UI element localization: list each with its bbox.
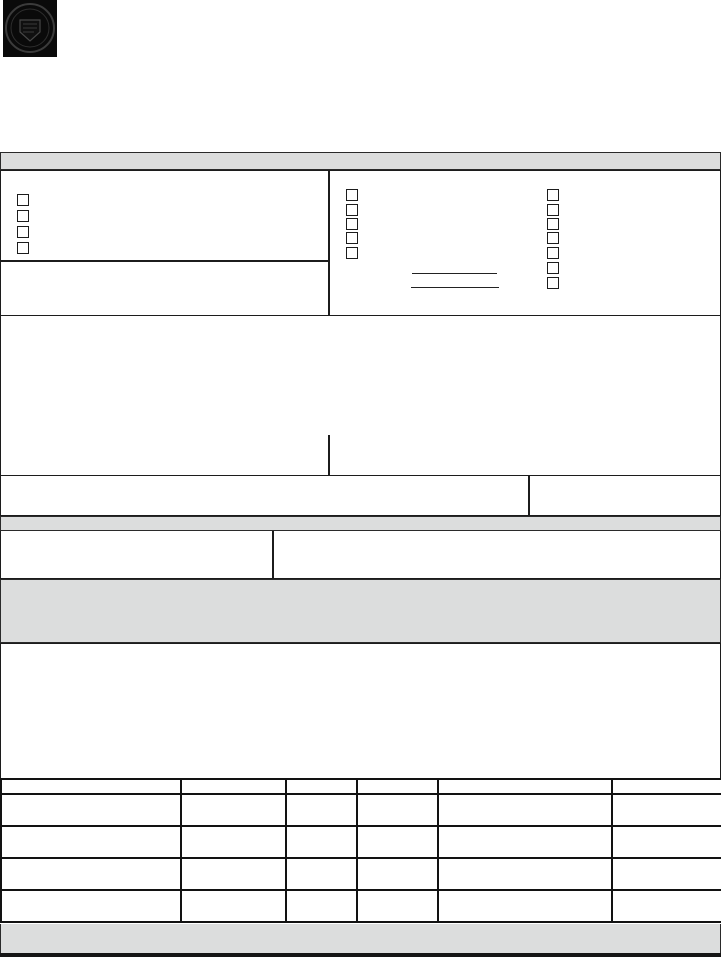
table-header-cell [357,779,438,794]
entry-cell[interactable] [1,262,328,315]
table-header-cell [438,779,612,794]
table-cell[interactable] [1,858,181,890]
table-header-cell [612,779,721,794]
table-cell[interactable] [1,826,181,858]
checkbox[interactable] [547,232,559,244]
table-cell[interactable] [357,890,438,922]
notes-area[interactable] [0,643,721,778]
table-header-cell [286,779,357,794]
checkbox[interactable] [17,226,29,238]
seal-logo [3,0,57,57]
table-cell[interactable] [612,890,721,922]
table-row [1,826,721,858]
table-cell[interactable] [181,890,286,922]
circular-seal-icon [3,0,57,57]
two-column-row [0,531,721,579]
table-cell[interactable] [286,794,357,826]
split-row [0,476,721,516]
entry-cell[interactable] [1,476,528,515]
checkbox[interactable] [547,247,559,259]
checkbox[interactable] [346,247,358,259]
checkbox[interactable] [547,277,559,289]
table-cell[interactable] [612,826,721,858]
table-cell[interactable] [181,826,286,858]
table-cell[interactable] [181,858,286,890]
instructions-band [0,579,721,643]
table-cell[interactable] [1,890,181,922]
write-in-line[interactable] [411,287,499,288]
checkbox[interactable] [346,189,358,201]
table-cell[interactable] [286,890,357,922]
table-header-row [1,779,721,794]
checkbox[interactable] [547,189,559,201]
table-header-cell [181,779,286,794]
table-cell[interactable] [357,794,438,826]
footer-band [0,924,721,953]
table-cell[interactable] [286,826,357,858]
table-cell[interactable] [181,794,286,826]
table-row [1,890,721,922]
checkbox[interactable] [346,232,358,244]
write-in-line[interactable] [412,273,497,274]
column-divider [328,171,330,315]
table-row [1,858,721,890]
checkbox-section [0,170,721,316]
checkbox[interactable] [17,194,29,206]
form-title-band [0,152,721,170]
scanned-form-page [0,0,721,957]
entry-cell[interactable] [1,531,272,578]
checkbox[interactable] [346,204,358,216]
checkbox[interactable] [547,218,559,230]
main-entry-area[interactable] [0,316,721,476]
table-cell[interactable] [438,858,612,890]
entry-table [0,778,721,923]
checkbox[interactable] [17,210,29,222]
table-cell[interactable] [357,858,438,890]
entry-cell[interactable] [273,531,720,578]
table-cell[interactable] [612,794,721,826]
table-cell[interactable] [286,858,357,890]
entry-divider [328,435,330,475]
table-cell[interactable] [438,826,612,858]
checkbox[interactable] [346,218,358,230]
table-cell[interactable] [438,890,612,922]
table-row [1,794,721,826]
table-cell[interactable] [612,858,721,890]
entry-cell[interactable] [529,476,720,515]
checkbox[interactable] [547,262,559,274]
table-cell[interactable] [1,794,181,826]
table-cell[interactable] [438,794,612,826]
section-header-band [0,516,721,531]
checkbox[interactable] [17,242,29,254]
table-header-cell [1,779,181,794]
table-cell[interactable] [357,826,438,858]
checkbox[interactable] [547,204,559,216]
bottom-edge-bar [0,953,721,957]
